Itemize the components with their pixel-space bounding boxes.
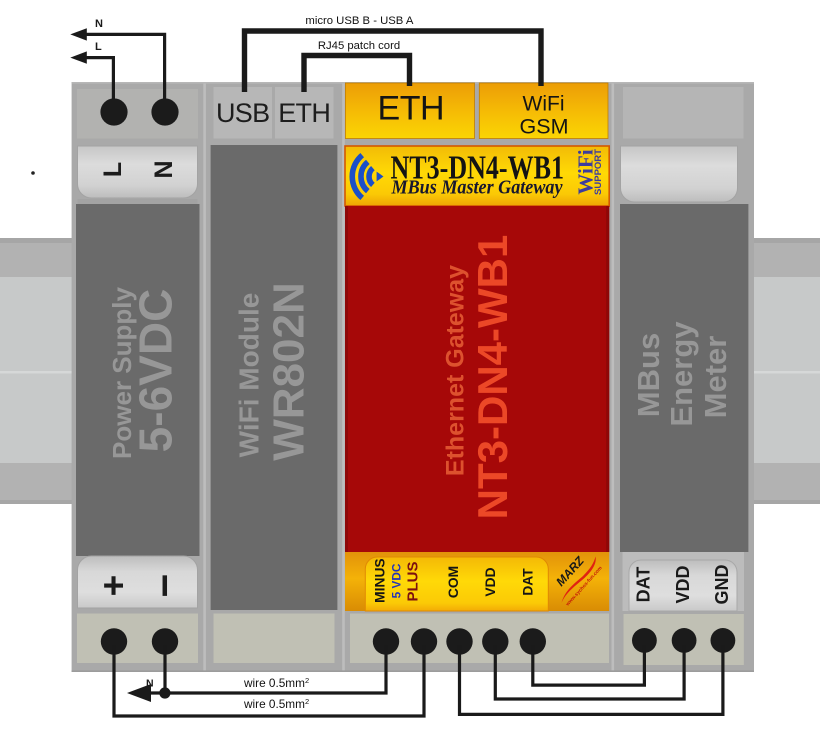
svg-text:WR802N: WR802N <box>265 282 314 461</box>
svg-text:RJ45 patch cord: RJ45 patch cord <box>318 40 400 52</box>
svg-text:+: + <box>93 575 134 597</box>
svg-text:L: L <box>99 162 127 177</box>
svg-text:N: N <box>95 18 103 30</box>
svg-text:MBus: MBus <box>631 333 666 417</box>
svg-text:USB: USB <box>216 98 269 128</box>
svg-text:5-6VDC: 5-6VDC <box>130 289 182 453</box>
svg-text:5 VDC: 5 VDC <box>390 563 404 598</box>
svg-text:ETH: ETH <box>378 90 445 128</box>
svg-text:wire 0.5mm2: wire 0.5mm2 <box>243 697 309 711</box>
svg-text:DAT: DAT <box>521 568 536 596</box>
svg-text:MINUS: MINUS <box>373 558 388 602</box>
svg-text:N: N <box>150 160 178 178</box>
svg-text:NT3-DN4-WB1: NT3-DN4-WB1 <box>469 235 516 520</box>
svg-text:VDD: VDD <box>483 567 498 596</box>
svg-text:WiFi Module: WiFi Module <box>234 293 265 458</box>
svg-text:PLUS: PLUS <box>405 561 422 601</box>
svg-text:micro USB B - USB A: micro USB B - USB A <box>305 15 413 27</box>
svg-text:GSM: GSM <box>520 114 569 138</box>
svg-text:WiFi: WiFi <box>523 93 565 116</box>
svg-text:Ethernet Gateway: Ethernet Gateway <box>442 265 470 476</box>
svg-text:DAT: DAT <box>633 567 653 603</box>
svg-text:GND: GND <box>712 565 732 605</box>
svg-text:N: N <box>146 678 154 690</box>
svg-text:−: − <box>142 574 188 598</box>
svg-text:wire 0.5mm2: wire 0.5mm2 <box>243 676 309 690</box>
svg-text:VDD: VDD <box>673 565 693 603</box>
svg-text:MBus Master Gateway: MBus Master Gateway <box>391 177 563 199</box>
svg-text:COM: COM <box>446 566 461 598</box>
svg-text:ETH: ETH <box>278 98 330 128</box>
svg-text:Meter: Meter <box>698 336 733 419</box>
svg-text:SUPPORT: SUPPORT <box>593 149 604 195</box>
svg-text:Energy: Energy <box>664 321 699 427</box>
svg-text:L: L <box>95 41 102 53</box>
